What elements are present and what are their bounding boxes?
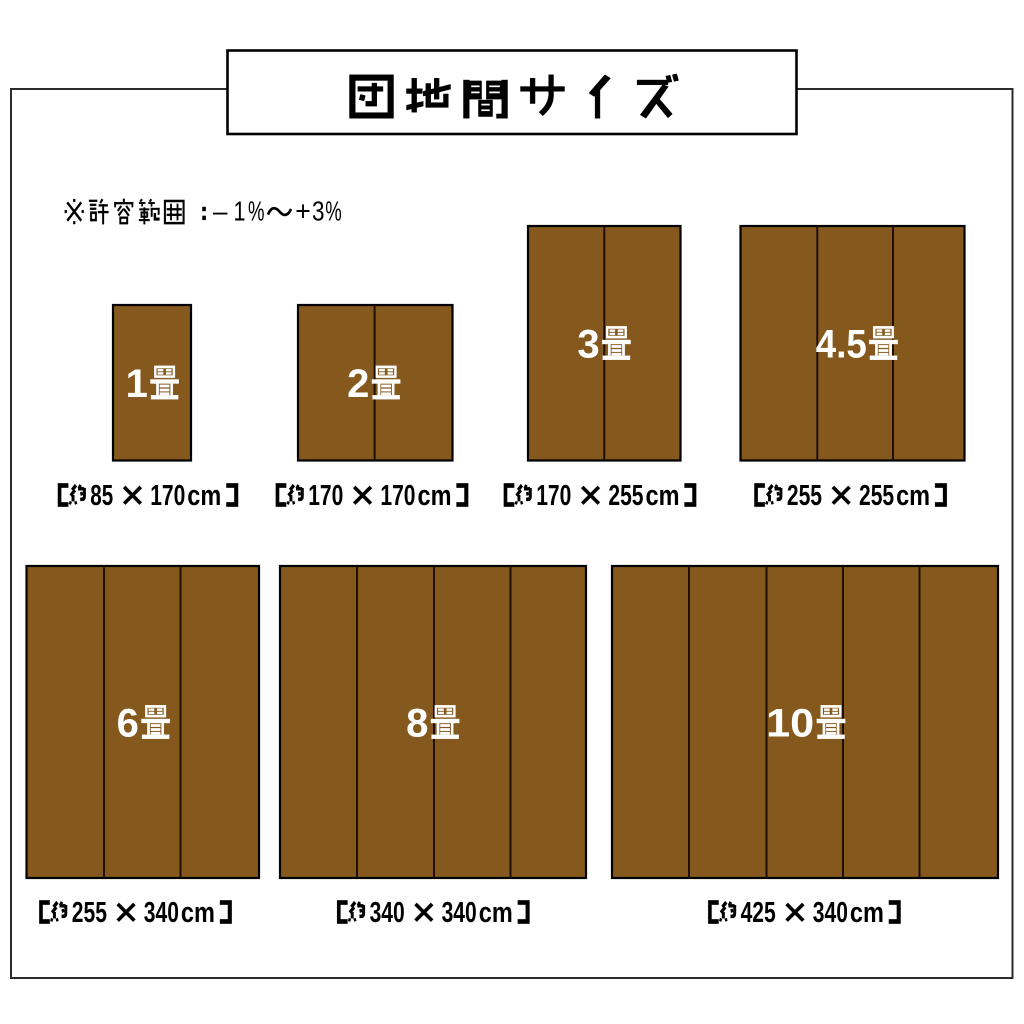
svg-text:4.5: 4.5: [816, 322, 867, 366]
svg-text:cm: cm: [181, 897, 215, 929]
svg-text:340: 340: [813, 897, 848, 929]
svg-text:340: 340: [370, 897, 405, 929]
svg-text:%: %: [248, 196, 265, 227]
svg-text:2: 2: [347, 362, 369, 406]
svg-text:+: +: [295, 196, 311, 227]
svg-text:cm: cm: [646, 480, 680, 512]
svg-text:425: 425: [741, 897, 776, 929]
svg-text:1: 1: [126, 362, 148, 406]
svg-text:170: 170: [380, 480, 415, 512]
svg-text:170: 170: [308, 480, 343, 512]
svg-text:cm: cm: [479, 897, 513, 929]
svg-text:8: 8: [406, 701, 428, 745]
svg-text:3: 3: [312, 196, 325, 227]
svg-text:340: 340: [442, 897, 477, 929]
svg-text:170: 170: [150, 480, 185, 512]
svg-text:6: 6: [117, 701, 139, 745]
svg-text:170: 170: [536, 480, 571, 512]
svg-text:340: 340: [144, 897, 179, 929]
svg-text:cm: cm: [187, 480, 221, 512]
svg-text:cm: cm: [418, 480, 452, 512]
svg-text:cm: cm: [896, 480, 930, 512]
svg-text:%: %: [325, 196, 342, 227]
svg-text:–: –: [213, 196, 228, 227]
svg-text:255: 255: [72, 897, 107, 929]
svg-text:3: 3: [577, 322, 599, 366]
svg-text:cm: cm: [850, 897, 884, 929]
svg-text:10: 10: [766, 701, 814, 745]
svg-text:1: 1: [234, 196, 246, 227]
svg-text:85: 85: [90, 480, 113, 512]
svg-text:255: 255: [787, 480, 822, 512]
svg-text:255: 255: [608, 480, 643, 512]
svg-text:255: 255: [859, 480, 894, 512]
